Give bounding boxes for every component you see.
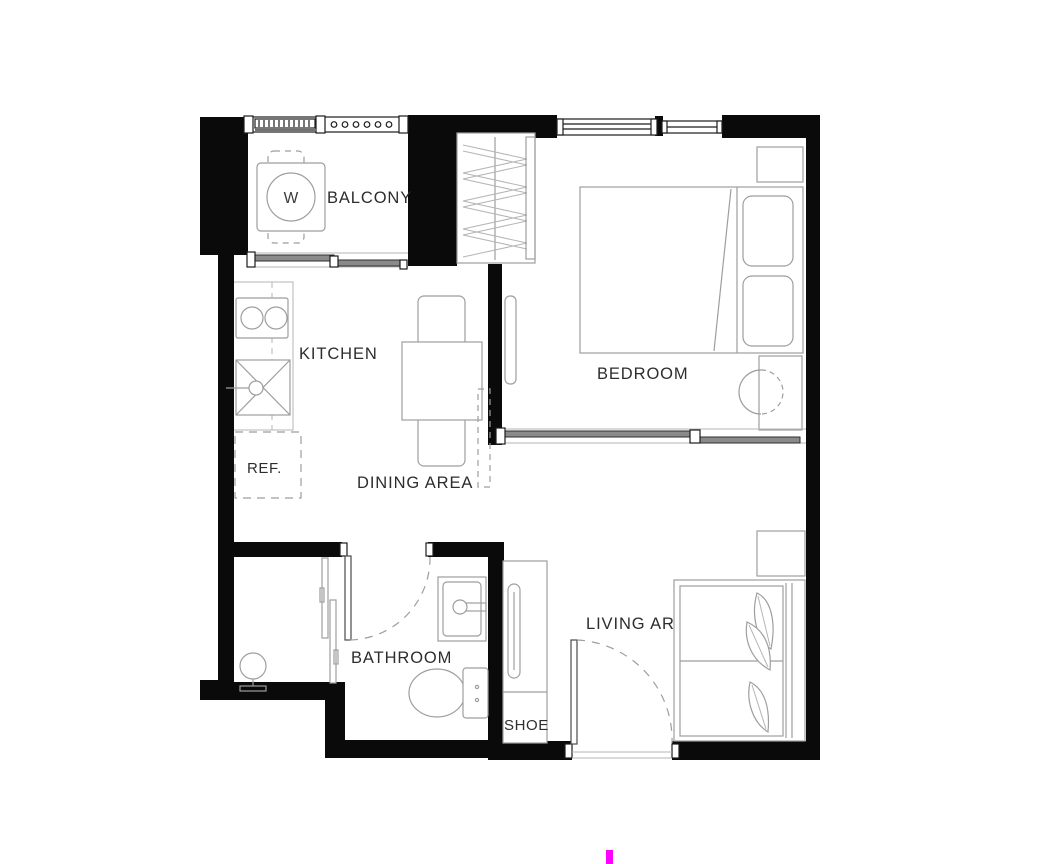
- wall-segment: [218, 253, 234, 700]
- wall-segment: [200, 117, 248, 255]
- balcony-railing: [244, 116, 408, 133]
- washer-label: W: [284, 190, 299, 207]
- kitchen-label: KITCHEN: [299, 345, 378, 363]
- wall-segment: [672, 741, 820, 760]
- refrigerator: REF.: [235, 432, 301, 498]
- bathroom-label: BATHROOM: [351, 649, 452, 667]
- side-table: [757, 531, 805, 576]
- wall-segment: [488, 542, 504, 758]
- bathroom-door: [340, 543, 433, 640]
- pillow: [743, 196, 793, 266]
- balcony-room: W BALCONY: [244, 116, 412, 269]
- wall-segment: [488, 741, 572, 760]
- tv-console: [503, 561, 547, 743]
- shower-enclosure: [320, 558, 338, 683]
- wall-segment: [722, 115, 820, 138]
- floor-plan-svg: W BALCONY: [0, 0, 1052, 864]
- kitchen-sink: [226, 360, 290, 415]
- bathroom-sink: [438, 577, 486, 641]
- floor-plan: W BALCONY: [0, 0, 1052, 864]
- wall-segment: [806, 115, 820, 760]
- bedroom-door-leaf: [505, 296, 516, 384]
- dining-chair-bottom: [418, 416, 465, 466]
- balcony-label: BALCONY: [327, 189, 412, 207]
- pillow: [743, 276, 793, 346]
- wall-segment: [408, 115, 457, 266]
- wall-segment: [488, 264, 502, 445]
- bed: [580, 187, 803, 353]
- cursor-mark: [606, 850, 613, 864]
- wall-segment: [218, 542, 342, 557]
- desk: [759, 356, 802, 430]
- ref-label: REF.: [247, 460, 282, 477]
- balcony-sliding-door: [247, 252, 408, 269]
- wardrobe: [457, 133, 535, 263]
- dining-table: [402, 296, 482, 466]
- bedroom-label: BEDROOM: [597, 365, 689, 383]
- bedroom-window-large: [557, 119, 657, 135]
- wall-segment: [325, 740, 508, 758]
- shoe-label: SHOE: [504, 717, 549, 734]
- washing-machine: W: [257, 151, 325, 243]
- nightstand: [757, 147, 803, 182]
- bedroom-room: BEDROOM: [457, 119, 806, 444]
- living-room: SHOE LIVING AREA: [503, 531, 805, 758]
- bedroom-window-small: [662, 121, 722, 133]
- dining-area-label: DINING AREA: [357, 474, 473, 492]
- entrance-door: [565, 640, 679, 758]
- stove: [236, 298, 288, 338]
- sofa: [674, 580, 805, 741]
- dining-chair-top: [418, 296, 465, 346]
- toilet: [409, 668, 488, 718]
- kitchen-room: REF. KITCHEN DINING AREA: [226, 282, 490, 498]
